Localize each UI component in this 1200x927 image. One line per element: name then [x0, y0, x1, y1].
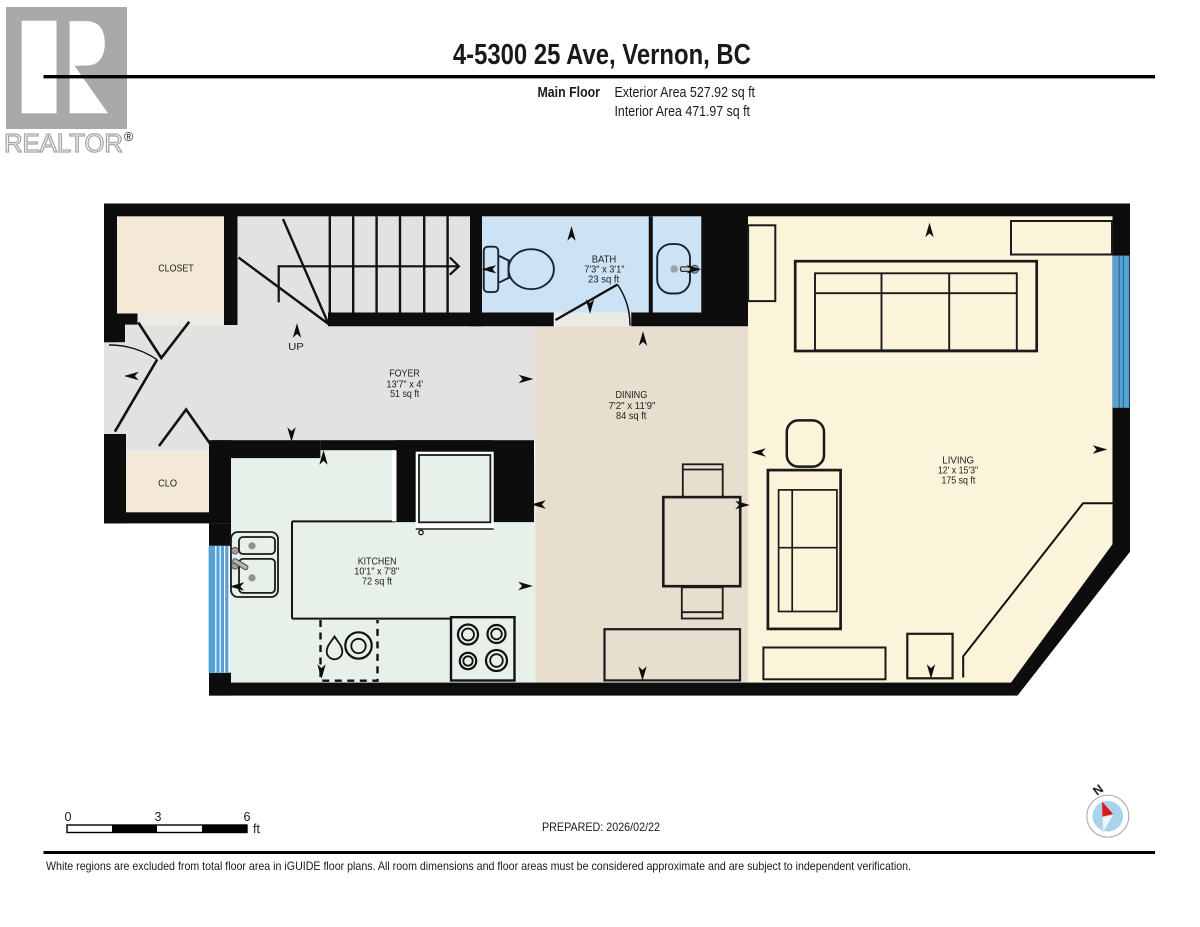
- svg-text:175 sq ft: 175 sq ft: [941, 475, 975, 487]
- svg-text:Main Floor: Main Floor: [538, 85, 601, 101]
- svg-text:23 sq ft: 23 sq ft: [588, 273, 619, 285]
- svg-text:Exterior Area 527.92 sq ft: Exterior Area 527.92 sq ft: [615, 85, 756, 101]
- svg-text:Interior Area 471.97 sq ft: Interior Area 471.97 sq ft: [615, 104, 751, 120]
- svg-text:UP: UP: [288, 341, 304, 353]
- svg-text:ft: ft: [253, 822, 260, 836]
- svg-text:84 sq ft: 84 sq ft: [616, 410, 646, 422]
- svg-text:White regions are excluded fro: White regions are excluded from total fl…: [46, 859, 911, 873]
- svg-text:®: ®: [124, 130, 134, 144]
- svg-text:0: 0: [65, 810, 72, 824]
- svg-text:CLOSET: CLOSET: [158, 262, 194, 274]
- svg-text:3: 3: [155, 810, 162, 824]
- svg-text:6: 6: [244, 810, 251, 824]
- svg-text:4-5300 25 Ave, Vernon, BC: 4-5300 25 Ave, Vernon, BC: [453, 39, 751, 71]
- svg-text:PREPARED: 2026/02/22: PREPARED: 2026/02/22: [542, 820, 660, 834]
- svg-text:51 sq ft: 51 sq ft: [390, 388, 419, 400]
- svg-text:72 sq ft: 72 sq ft: [362, 575, 392, 587]
- svg-text:CLO: CLO: [158, 477, 177, 489]
- svg-text:REALTOR: REALTOR: [4, 130, 123, 158]
